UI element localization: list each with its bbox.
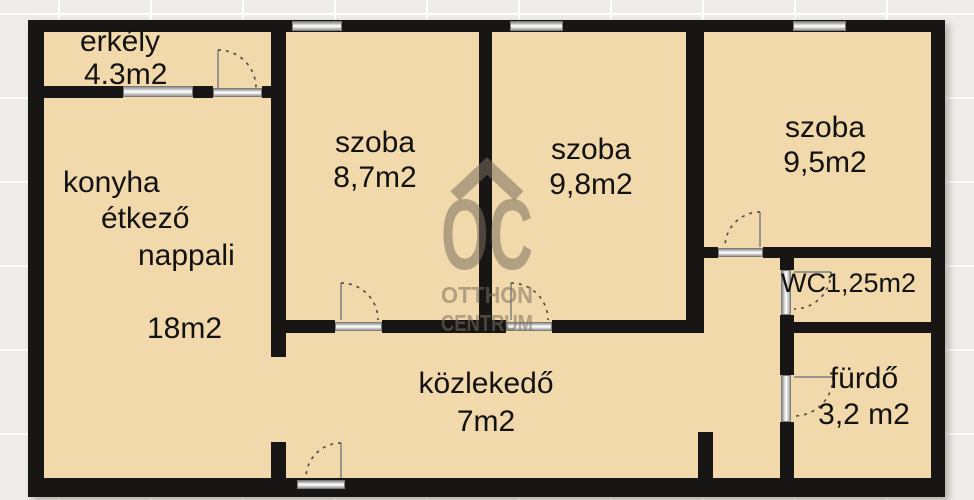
label-wc: WC1,25m2 <box>781 270 916 297</box>
door-arc-entrance <box>306 443 341 478</box>
label-room2-name: szoba <box>492 135 690 165</box>
label-living-line1: konyha <box>63 168 160 198</box>
label-bathroom-name: fürdő <box>794 364 934 394</box>
door-arc-balcony <box>218 50 256 88</box>
label-room1-name: szoba <box>280 128 470 158</box>
label-hall-name: közlekedő <box>286 369 686 399</box>
label-bathroom-area: 3,2 m2 <box>794 400 934 430</box>
label-hall-area: 7m2 <box>286 407 686 437</box>
label-room3-name: szoba <box>710 113 940 143</box>
label-living-area: 18m2 <box>147 314 222 344</box>
label-room1-area: 8,7m2 <box>280 163 470 193</box>
label-living-line2: étkező <box>101 204 189 234</box>
door-arc-room2 <box>511 283 548 320</box>
label-living-line3: nappali <box>138 241 235 271</box>
label-room3-area: 9,5m2 <box>710 148 940 178</box>
floor-plan-canvas: erkély 4.3m2 konyha étkező nappali 18m2 … <box>0 0 974 500</box>
door-arc-room3 <box>725 212 760 247</box>
label-balcony-name: erkély <box>80 27 160 57</box>
label-room2-area: 9,8m2 <box>492 170 690 200</box>
door-arc-room1 <box>341 283 378 320</box>
label-balcony-area: 4.3m2 <box>84 60 167 90</box>
